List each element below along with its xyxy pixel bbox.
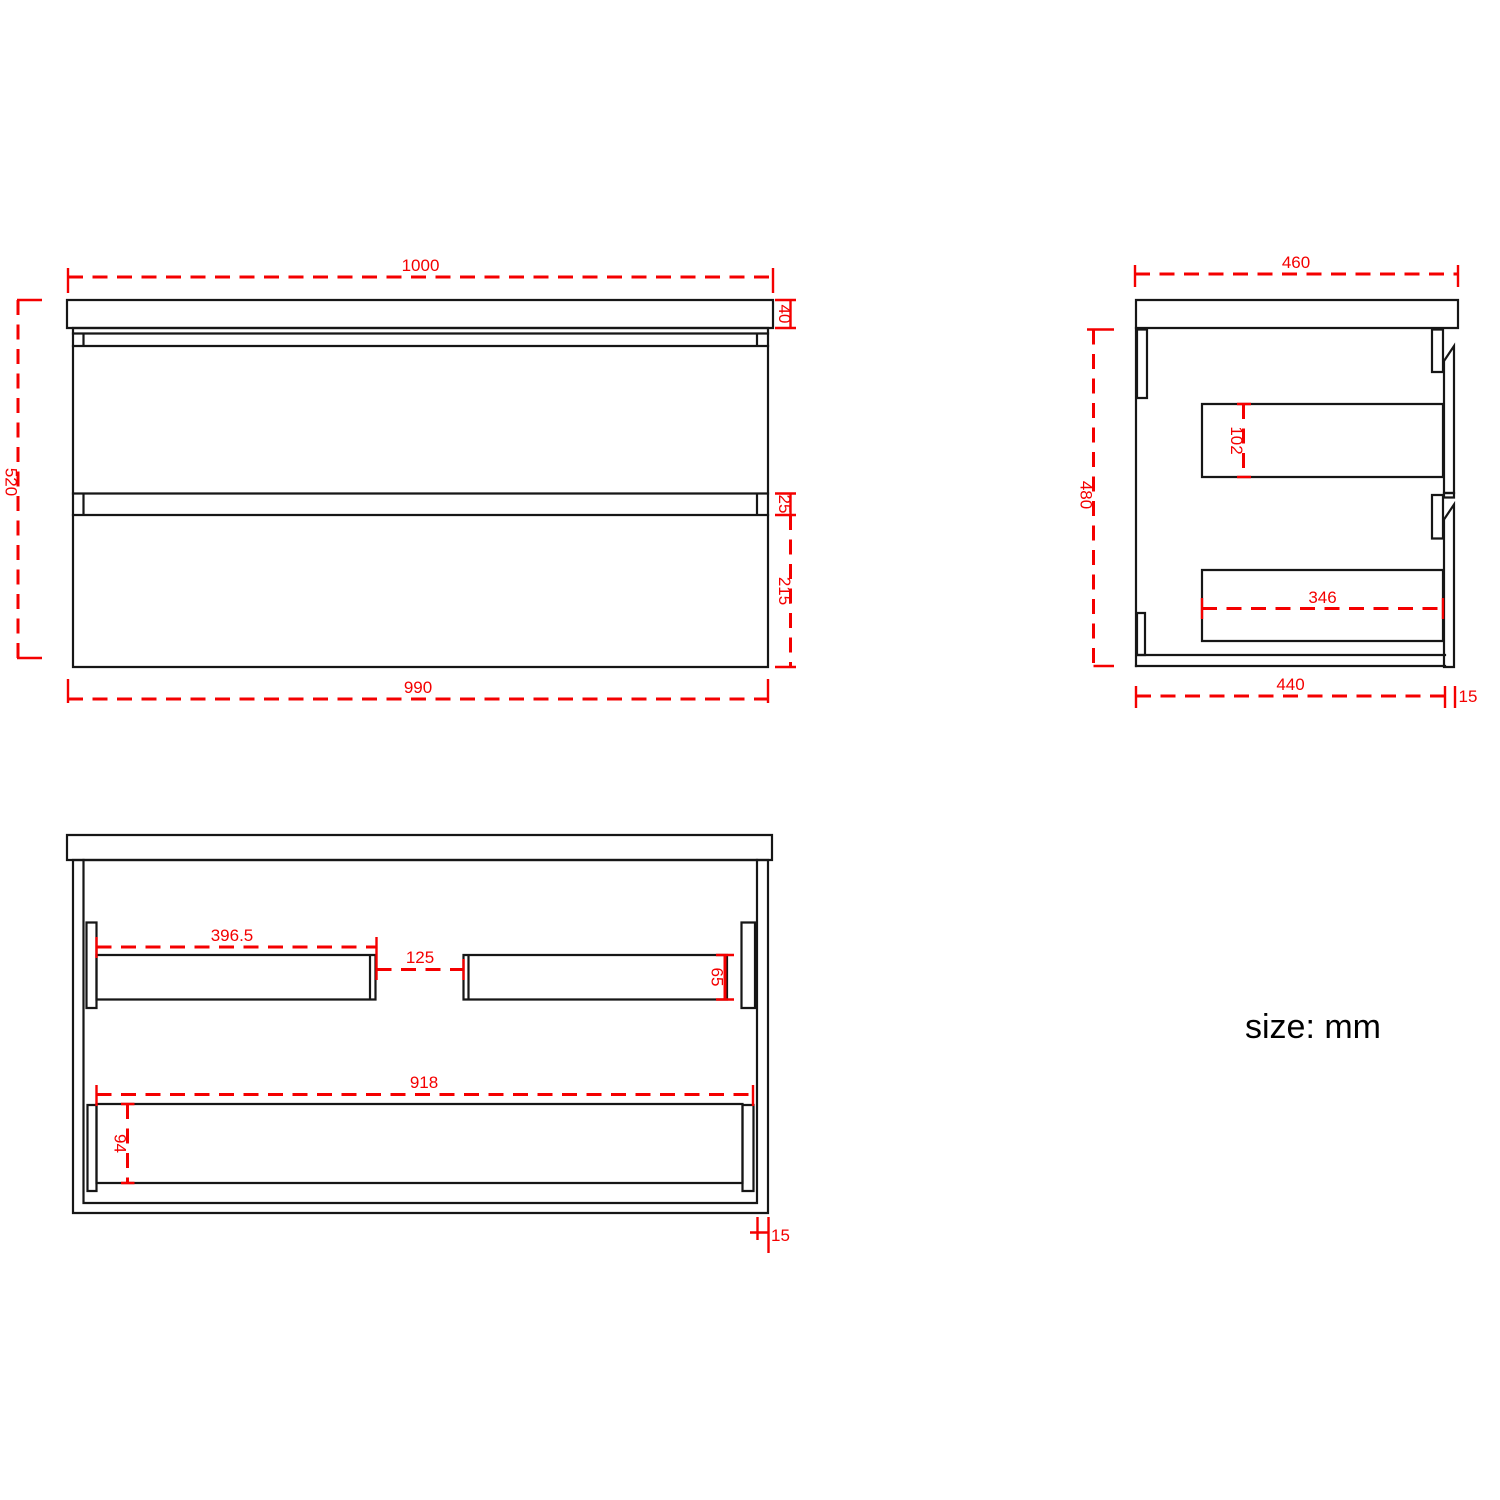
dim-front-bottom-width-label: 990 [404,678,432,697]
dim-plan-panel-thickness: 15 [750,1217,790,1253]
plan-upper-left-drawer-back [97,955,376,1000]
dim-side-panel-thickness: 15 [1455,686,1477,708]
side-lower-front-bracket [1432,495,1443,539]
dim-front-height: 520 [2,300,43,658]
side-view-outline [1136,300,1458,667]
side-top-hanging-rail [1137,330,1147,399]
front-top-rail [73,334,768,347]
front-middle-rail [73,494,768,516]
dim-side-top-depth-label: 460 [1282,253,1310,272]
dim-side-box-height-label: 102 [1227,426,1246,454]
dim-front-bottom-width: 990 [68,678,768,703]
units-note: size: mm [1245,1008,1381,1047]
side-bottom-panel [1136,655,1445,666]
dim-front-counter-thickness-label: 40 [775,305,794,324]
plan-lower-left-slide [88,1105,97,1191]
dim-side-height: 480 [1077,330,1115,667]
dim-plan-back-depth: 65 [708,955,735,1000]
dim-front-gap: 25 [775,494,796,516]
plan-body [73,860,768,1213]
dim-side-box-depth: 346 [1202,588,1443,619]
dim-plan-wide-back-width: 918 [97,1073,754,1106]
dim-plan-center-gap: 125 [377,948,464,980]
plan-inner-walls [84,860,758,1203]
dim-plan-center-gap-label: 125 [406,948,434,967]
front-body [73,328,768,667]
plan-lower-drawer-back [97,1104,743,1183]
side-lower-drawer-front [1444,505,1454,668]
dim-front-counter-thickness: 40 [775,300,796,328]
dim-side-top-depth: 460 [1135,253,1458,287]
dim-side-box-height: 102 [1227,404,1251,477]
side-upper-drawer-front [1444,346,1454,493]
dim-side-panel-thickness-label: 15 [1459,687,1478,706]
side-upper-front-bracket [1432,330,1443,373]
dim-front-drawer-height-label: 215 [775,577,794,605]
plan-view: 396.5 125 65 918 [67,835,790,1253]
front-countertop [67,300,773,328]
plan-upper-right-slide [742,923,756,1009]
cad-sheet: 1000 40 520 25 215 [0,0,1500,1500]
dim-plan-left-back-width: 396.5 [97,926,377,980]
dim-plan-wide-back-depth-label: 94 [111,1134,130,1153]
front-view-outline [67,300,773,667]
plan-countertop-edge [67,835,772,860]
dim-plan-wide-back-depth: 94 [111,1104,135,1183]
plan-lower-right-slide [743,1105,754,1191]
dim-plan-back-depth-label: 65 [708,968,727,987]
dim-front-top-width: 1000 [68,256,773,293]
dim-plan-left-back-width-label: 396.5 [211,926,254,945]
dim-side-height-label: 480 [1077,481,1096,509]
dim-plan-wide-back-width-label: 918 [410,1073,438,1092]
front-dimensions: 1000 40 520 25 215 [2,256,797,703]
dim-side-bottom-depth-label: 440 [1276,675,1304,694]
dim-side-bottom-depth: 440 [1136,675,1445,708]
side-bottom-hanging-rail [1137,613,1145,655]
side-countertop [1136,300,1458,328]
plan-view-outline [67,835,772,1213]
plan-upper-right-drawer-back [464,955,728,1000]
dim-front-height-label: 520 [2,468,21,496]
dim-front-gap-label: 25 [775,495,794,514]
front-view: 1000 40 520 25 215 [2,256,797,703]
side-front-gap [1444,493,1454,498]
plan-upper-left-slide [87,923,97,1009]
dim-front-top-width-label: 1000 [402,256,440,275]
dim-plan-panel-thickness-label: 15 [771,1226,790,1245]
dim-side-box-depth-label: 346 [1308,588,1336,607]
dim-front-drawer-height: 215 [775,515,796,667]
technical-drawing-canvas: 1000 40 520 25 215 [0,0,1500,1500]
side-view: 460 480 102 346 [1077,253,1478,708]
